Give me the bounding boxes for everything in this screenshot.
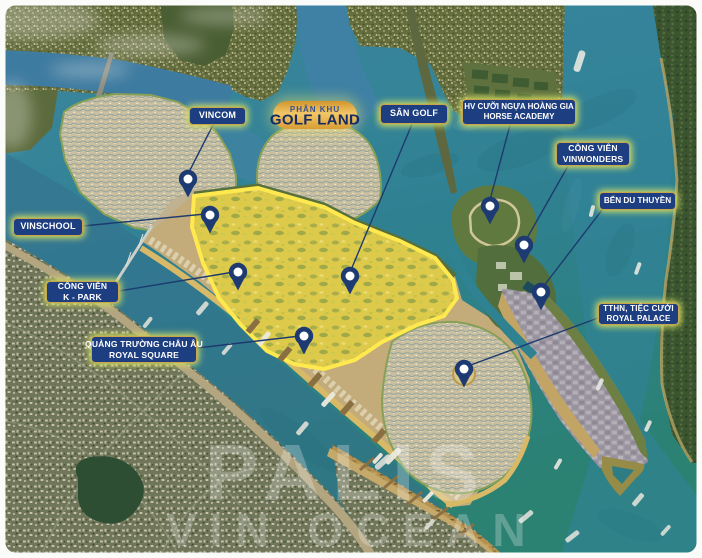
svg-text:GOLF LAND: GOLF LAND (270, 112, 360, 129)
svg-text:VIN OCEAN: VIN OCEAN (166, 504, 539, 556)
